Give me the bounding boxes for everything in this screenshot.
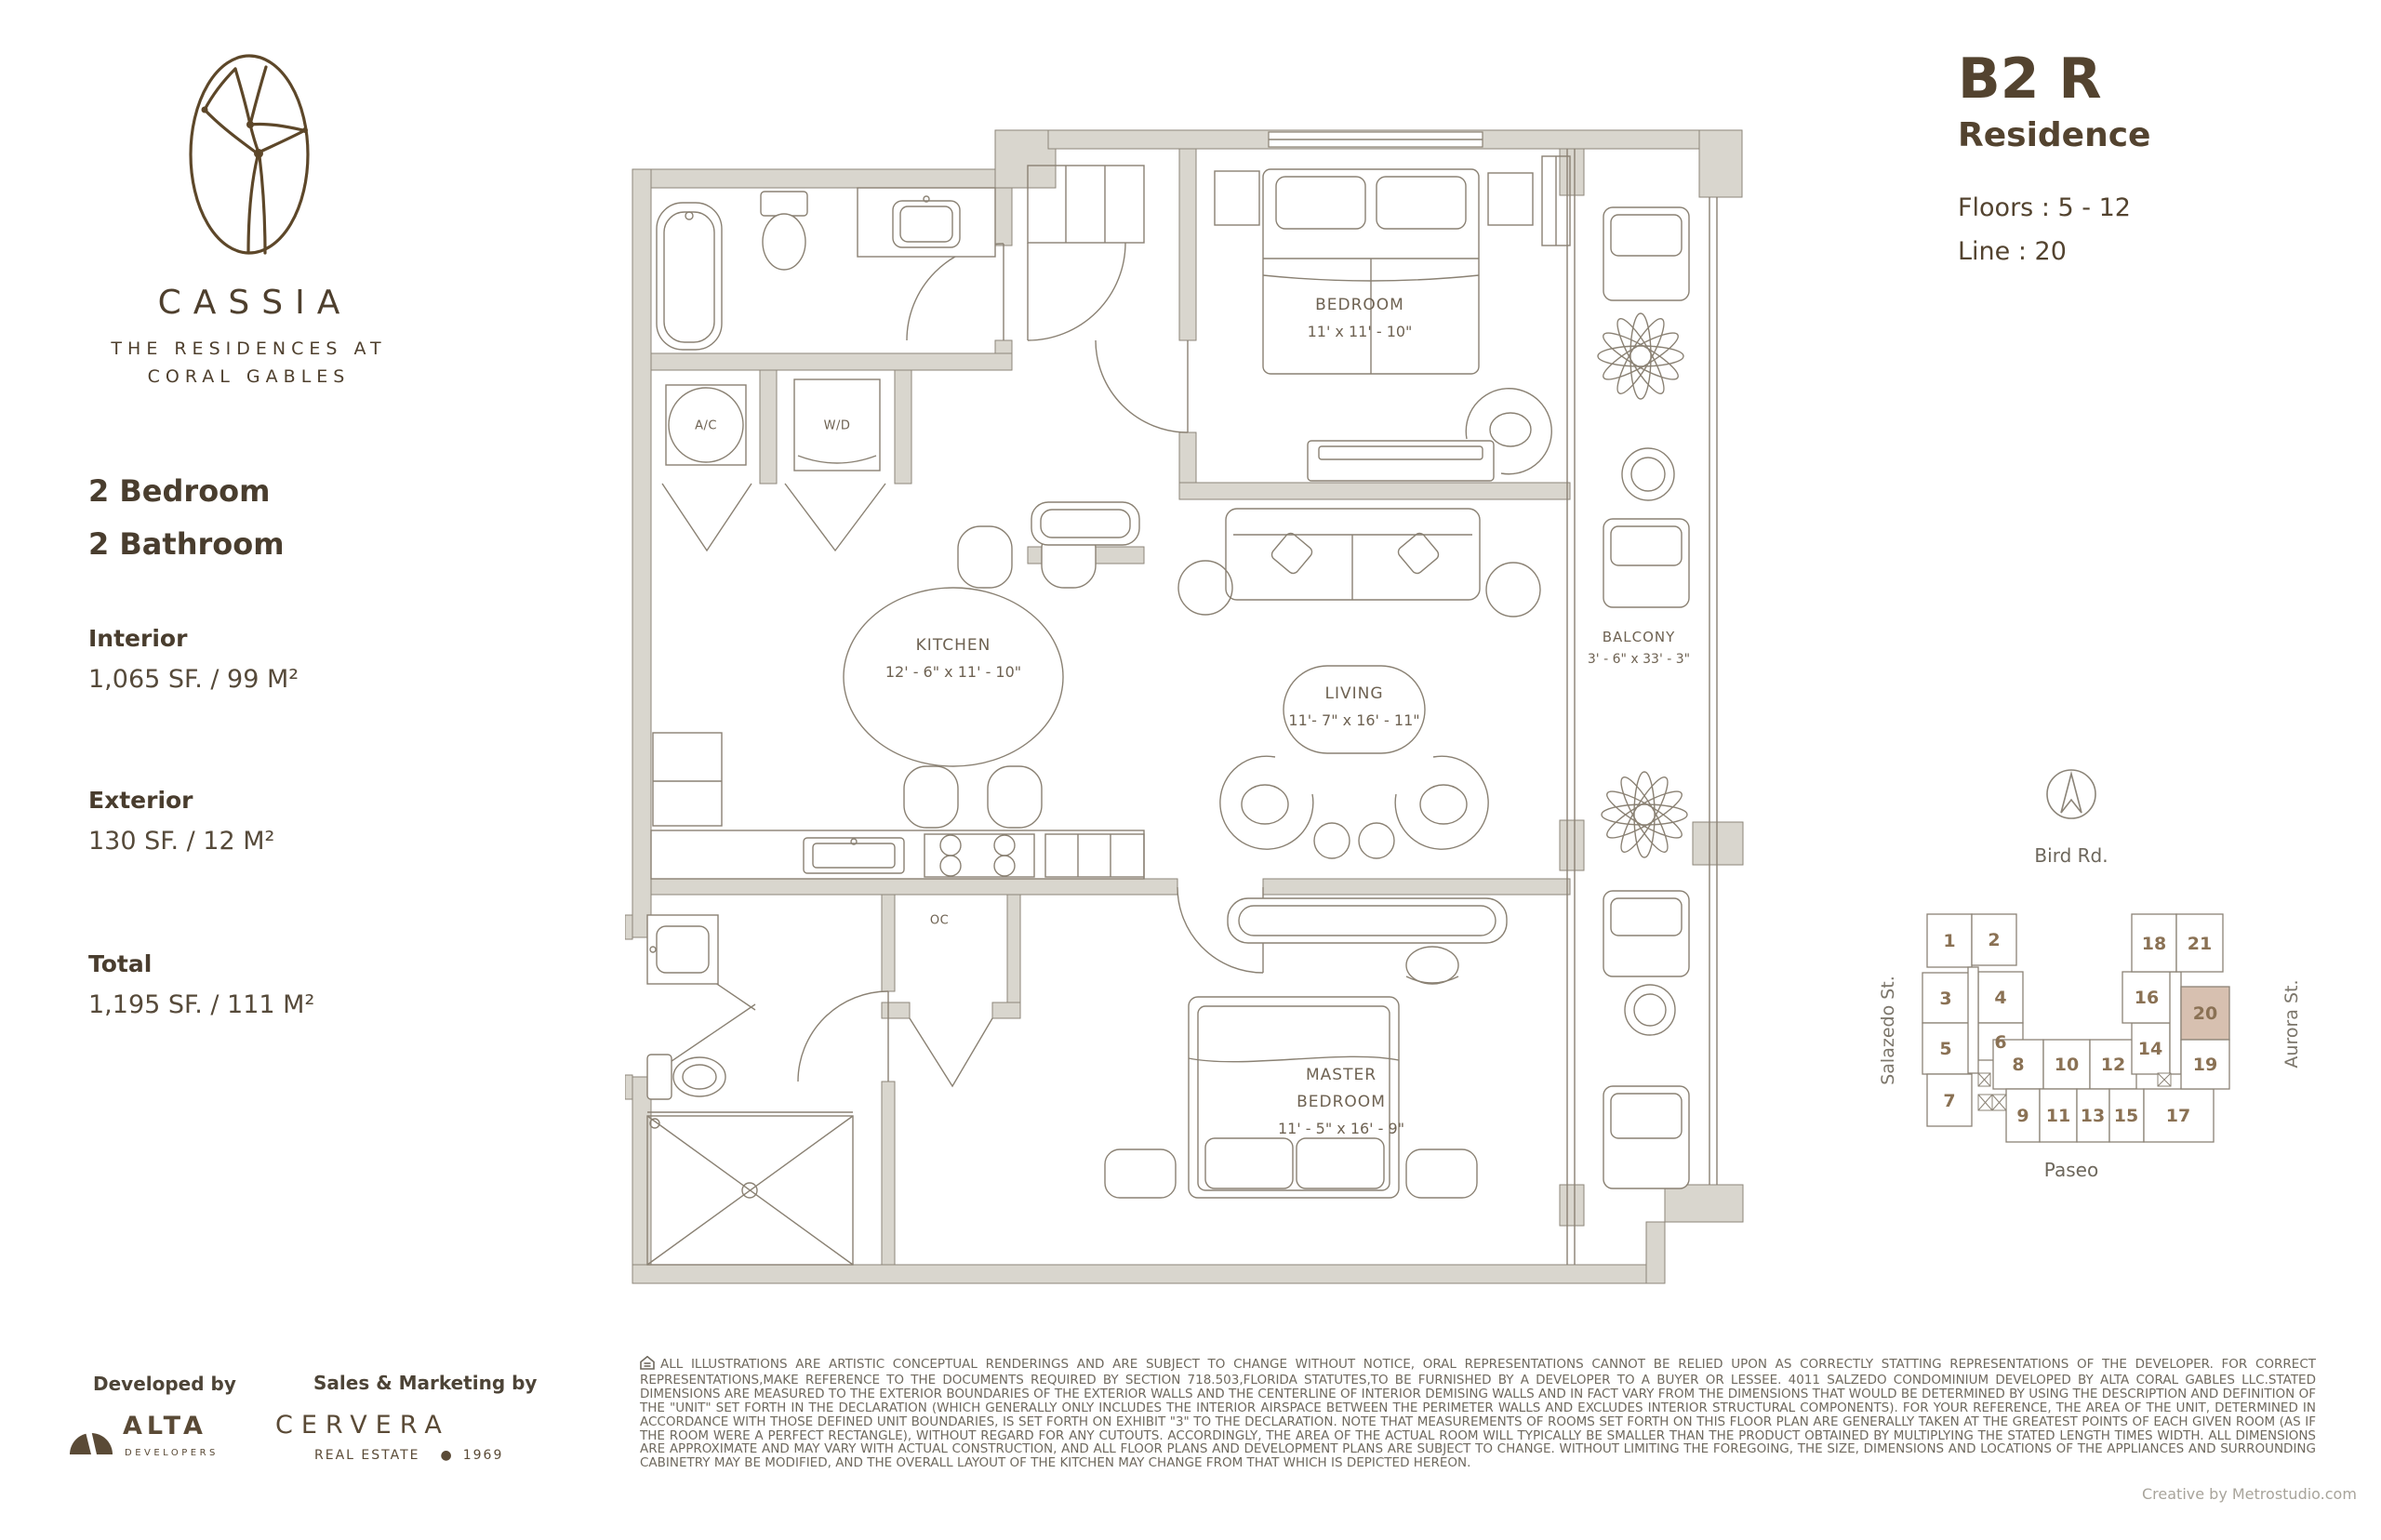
master-bedroom-label: MASTER BEDROOM 11' - 5" x 16' - 9" [1278,1066,1404,1137]
master-bathroom-fixtures [647,915,853,1265]
total-area-group: Total 1,195 SF. / 111 M² [88,950,314,1019]
master-bedroom-furniture [1105,898,1507,1198]
exterior-area-group: Exterior 130 SF. / 12 M² [88,787,274,856]
svg-text:20: 20 [2193,1003,2217,1024]
brand-block: CASSIA THE RESIDENCES AT CORAL GABLES [56,33,442,392]
brand-subtitle: THE RESIDENCES AT CORAL GABLES [56,335,442,392]
plant-icon [1602,772,1687,857]
interior-value: 1,065 SF. / 99 M² [88,665,299,694]
road-label-bird: Bird Rd. [2034,844,2108,867]
svg-text:12: 12 [2101,1055,2125,1075]
interior-area-group: Interior 1,065 SF. / 99 M² [88,625,299,694]
svg-text:19: 19 [2193,1055,2217,1075]
disclaimer-text: ALL ILLUSTRATIONS ARE ARTISTIC CONCEPTUA… [640,1357,2316,1470]
svg-text:2: 2 [1988,930,2000,950]
plant-icon [1598,313,1683,399]
residence-block: B2 R Residence Floors : 5 - 12 Line : 20 [1958,51,2150,266]
alta-logo-icon [67,1409,115,1461]
residence-floors: Floors : 5 - 12 [1958,193,2150,222]
svg-text:18: 18 [2142,934,2166,954]
sales-marketing-label: Sales & Marketing by [313,1372,537,1394]
bedroom-count: 2 Bedroom [88,465,285,518]
svg-text:13: 13 [2081,1106,2105,1126]
svg-text:6: 6 [1994,1032,2006,1053]
total-value: 1,195 SF. / 111 M² [88,990,314,1019]
bedroom-window [1269,132,1483,147]
bathroom-fixtures [657,188,995,350]
brand-subtitle-line1: THE RESIDENCES AT [56,335,442,363]
svg-text:3: 3 [1939,989,1951,1009]
ac-label: A/C [695,419,717,433]
svg-text:15: 15 [2114,1106,2138,1126]
street-label-aurora: Aurora St. [2281,979,2302,1068]
interior-label: Interior [88,625,299,652]
brand-subtitle-line2: CORAL GABLES [56,363,442,391]
svg-text:21: 21 [2188,934,2212,954]
street-label-paseo: Paseo [2044,1159,2098,1181]
svg-text:9: 9 [2016,1106,2029,1126]
kitchen-label: KITCHEN 12' - 6" x 11' - 10" [885,636,1021,681]
svg-text:10: 10 [2055,1055,2079,1075]
compass-north-icon [2047,770,2095,818]
svg-text:5: 5 [1939,1039,1951,1059]
cassia-seed-logo-icon [156,33,342,261]
developer-sub: DEVELOPERS [125,1448,219,1458]
wd-label: W/D [824,419,851,433]
svg-text:17: 17 [2166,1106,2190,1126]
site-key-map: Bird Rd. Salazedo St. Aurora St. Paseo [1879,761,2307,1207]
svg-text:16: 16 [2135,988,2159,1008]
street-label-salazedo: Salazedo St. [1879,976,1898,1085]
living-label: LIVING 11'- 7" x 16' - 11" [1288,684,1419,729]
svg-text:1: 1 [1943,931,1955,951]
svg-text:7: 7 [1943,1091,1955,1111]
oc-label: OC [930,914,949,928]
residence-code: B2 R [1958,51,2150,107]
svg-text:8: 8 [2012,1055,2024,1075]
developed-by-label: Developed by [93,1373,236,1395]
kitchen-fixtures [651,502,1144,879]
svg-text:4: 4 [1994,988,2006,1008]
floor-plan-brochure-page: CASSIA THE RESIDENCES AT CORAL GABLES 2 … [0,0,2381,1540]
sales-company-sub: REAL ESTATE●1969 [314,1448,503,1463]
exterior-value: 130 SF. / 12 M² [88,827,274,856]
svg-text:14: 14 [2138,1039,2162,1059]
exterior-label: Exterior [88,787,274,814]
svg-text:11: 11 [2046,1106,2070,1126]
floor-plan: BEDROOM 11' x 11' - 10" KITCHEN 12' - 6"… [625,119,1752,1309]
balcony-label: BALCONY 3' - 6" x 33' - 3" [1588,629,1690,667]
bullet-icon: ● [441,1448,454,1463]
total-label: Total [88,950,314,977]
living-room-furniture [1178,509,1540,858]
residence-line: Line : 20 [1958,237,2150,266]
balcony-furniture [1598,207,1689,1188]
bathroom-count: 2 Bathroom [88,518,285,571]
creative-credit: Creative by Metrostudio.com [2142,1485,2357,1503]
bedroom-label: BEDROOM 11' x 11' - 10" [1308,296,1413,340]
residence-type-label: Residence [1958,116,2150,154]
legal-disclaimer: ALL ILLUSTRATIONS ARE ARTISTIC CONCEPTUA… [640,1356,2316,1470]
floor-plan-drawing [625,119,1752,1309]
unit-rooms-summary: 2 Bedroom 2 Bathroom [88,465,285,571]
sales-company-name: CERVERA [275,1411,450,1440]
brand-name: CASSIA [56,284,442,322]
developer-name: ALTA [123,1412,207,1440]
equal-housing-icon [640,1356,655,1374]
